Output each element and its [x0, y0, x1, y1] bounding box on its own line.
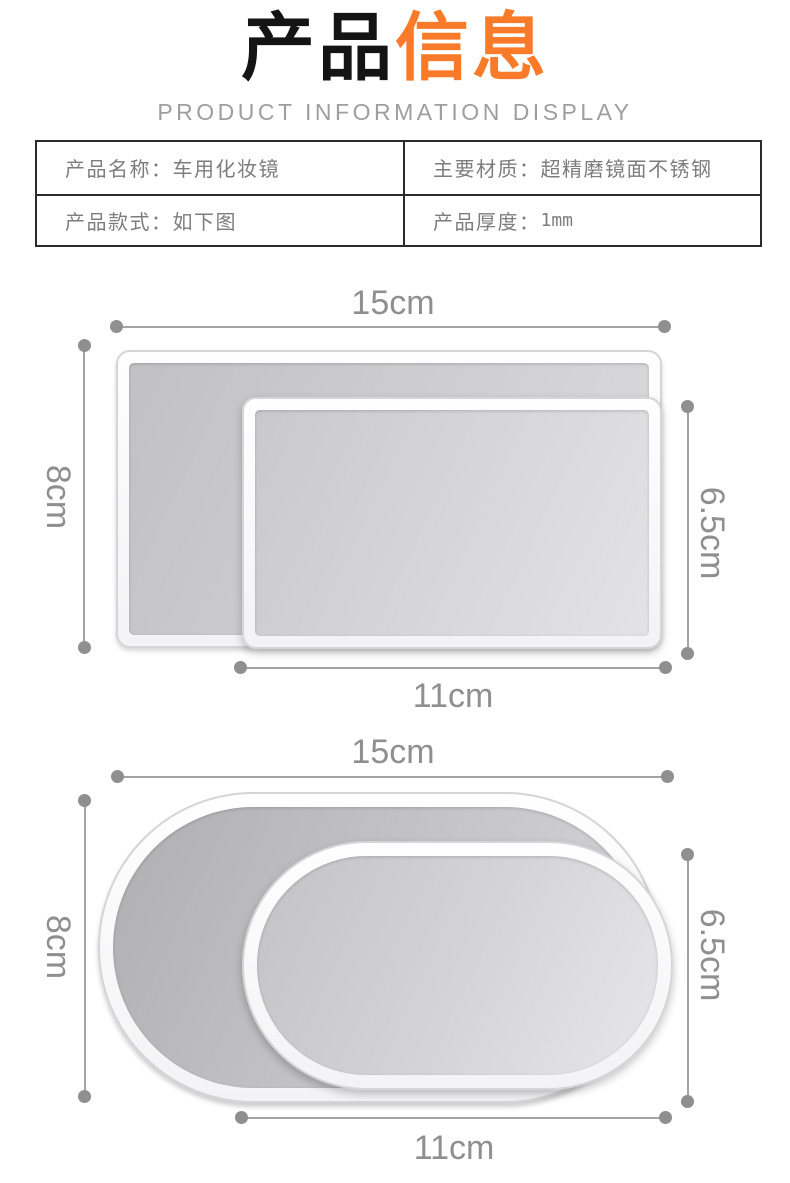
oval-large-height-label: 8cm: [38, 872, 78, 1022]
dimension-line: [240, 667, 667, 669]
dimension-dot: [78, 339, 91, 352]
spec-label: 产品款式：: [65, 206, 173, 235]
spec-label: 产品厚度：: [433, 206, 541, 235]
page-title-accent: 信息: [395, 6, 549, 89]
dimension-line: [84, 800, 86, 1098]
spec-label: 产品名称：: [65, 153, 173, 182]
dimension-dot: [681, 1095, 694, 1108]
page-subtitle: PRODUCT INFORMATION DISPLAY: [0, 99, 790, 126]
page-title-black: 产品: [241, 6, 395, 89]
dimension-line: [117, 326, 665, 328]
spec-cell-material: 主要材质：超精磨镜面不锈钢: [403, 142, 760, 194]
spec-value: 如下图: [173, 206, 238, 235]
dimension-dot: [681, 400, 694, 413]
mirror-rect-small: [242, 397, 662, 649]
page-title: 产品信息: [0, 4, 790, 93]
rect-small-width-label: 11cm: [353, 676, 553, 716]
dimension-dot: [681, 647, 694, 660]
dimension-line: [687, 406, 689, 654]
spec-value: 1mm: [541, 210, 574, 231]
product-info-page: 产品信息 PRODUCT INFORMATION DISPLAY 产品名称：车用…: [0, 0, 790, 1183]
oval-small-height-label: 6.5cm: [692, 880, 732, 1030]
rect-small-height-label: 6.5cm: [692, 458, 732, 608]
spec-table: 产品名称：车用化妆镜 主要材质：超精磨镜面不锈钢 产品款式：如下图 产品厚度：1…: [35, 140, 762, 247]
mirror-glass: [257, 856, 658, 1075]
oval-large-width-label: 15cm: [293, 732, 493, 772]
dimension-dot: [235, 1111, 248, 1124]
rect-large-height-label: 8cm: [38, 422, 78, 572]
dimension-dot: [111, 770, 124, 783]
spec-cell-product-name: 产品名称：车用化妆镜: [37, 142, 403, 194]
spec-value: 超精磨镜面不锈钢: [541, 153, 713, 182]
dimension-dot: [661, 770, 674, 783]
dimension-dot: [78, 1090, 91, 1103]
dimension-dot: [78, 641, 91, 654]
dimension-line: [117, 776, 669, 778]
rect-large-width-label: 15cm: [293, 283, 493, 323]
spec-value: 车用化妆镜: [173, 153, 281, 182]
mirror-oval-small: [242, 841, 673, 1090]
dimension-line: [241, 1117, 667, 1119]
dimension-dot: [659, 661, 672, 674]
dimension-dot: [110, 320, 123, 333]
dimension-line: [83, 345, 85, 648]
mirror-glass: [255, 410, 649, 636]
dimension-line: [687, 854, 689, 1102]
spec-cell-thickness: 产品厚度：1mm: [403, 194, 760, 246]
dimension-dot: [234, 661, 247, 674]
dimension-dot: [78, 794, 91, 807]
spec-label: 主要材质：: [433, 153, 541, 182]
dimension-dot: [658, 320, 671, 333]
spec-cell-style: 产品款式：如下图: [37, 194, 403, 246]
oval-small-width-label: 11cm: [354, 1128, 554, 1168]
dimension-dot: [681, 848, 694, 861]
dimension-dot: [659, 1111, 672, 1124]
